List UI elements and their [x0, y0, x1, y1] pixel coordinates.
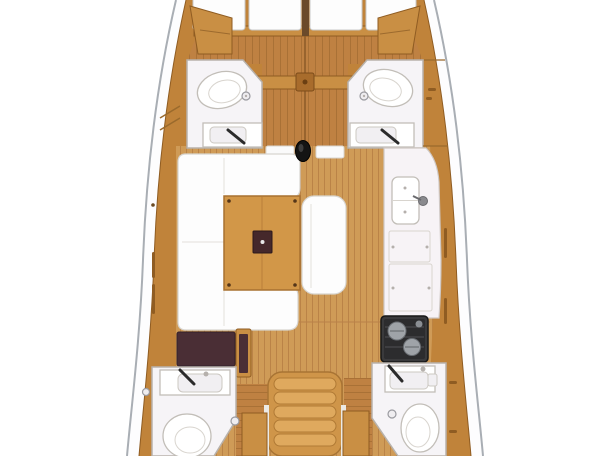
stove	[381, 316, 428, 362]
galley-faucet	[419, 197, 428, 206]
port-trim-slot-1	[152, 252, 155, 278]
latch-dot	[426, 246, 429, 249]
nav-desk	[177, 332, 235, 366]
mast-post-highlight	[299, 144, 304, 152]
shower-drain-aft-starboard	[388, 410, 396, 418]
soap-tray	[428, 374, 437, 386]
floor-plan-canvas	[0, 0, 608, 456]
locker-starboard	[343, 411, 369, 456]
mast-post	[296, 141, 311, 162]
head-forward-port	[187, 60, 262, 148]
door-knob-aft-port	[231, 417, 239, 425]
stbd-trim-handle-2	[426, 97, 432, 100]
berth-center-seam	[302, 0, 309, 36]
step-tread-1	[274, 378, 336, 390]
sink-drain-dot	[404, 187, 407, 190]
stbd-aft-hinge-2	[449, 430, 457, 433]
latch-dot	[392, 287, 395, 290]
nav-seat	[239, 334, 248, 373]
mast-step-bolt	[303, 80, 308, 85]
yacht-floor-plan	[0, 0, 608, 456]
stbd-aft-hinge-1	[449, 381, 457, 384]
wall-knob-port	[143, 389, 150, 396]
door-threshold-starboard	[316, 146, 344, 158]
v-berth-cushion-3	[310, 0, 362, 30]
step-tread-3	[274, 406, 336, 418]
step-tread-2	[274, 392, 336, 404]
table-hinge-dot	[293, 283, 297, 287]
latch-dot	[392, 246, 395, 249]
stbd-trim-slot-1	[444, 228, 447, 258]
drain-dot	[363, 95, 365, 97]
sink-knob	[204, 372, 209, 377]
v-berth-cushion-2	[249, 0, 301, 30]
sink-drain-dot	[404, 211, 407, 214]
locker-port	[242, 413, 267, 456]
latch-dot	[428, 287, 431, 290]
port-trim-slot-2	[152, 284, 155, 314]
step-tread-4	[274, 420, 336, 432]
step-tread-5	[274, 434, 336, 446]
bench-starboard	[302, 196, 346, 294]
table-hinge-dot	[227, 199, 231, 203]
stbd-trim-handle-1	[428, 88, 436, 91]
table-hinge-dot	[227, 283, 231, 287]
port-trim-dot	[151, 203, 155, 207]
drain-dot	[245, 95, 247, 97]
table-hinge-dot	[293, 199, 297, 203]
table-box-dot	[261, 240, 265, 244]
stbd-trim-slot-2	[444, 298, 447, 324]
stove-knob	[416, 321, 423, 328]
head-forward-starboard	[348, 60, 423, 148]
sink-knob	[421, 367, 426, 372]
